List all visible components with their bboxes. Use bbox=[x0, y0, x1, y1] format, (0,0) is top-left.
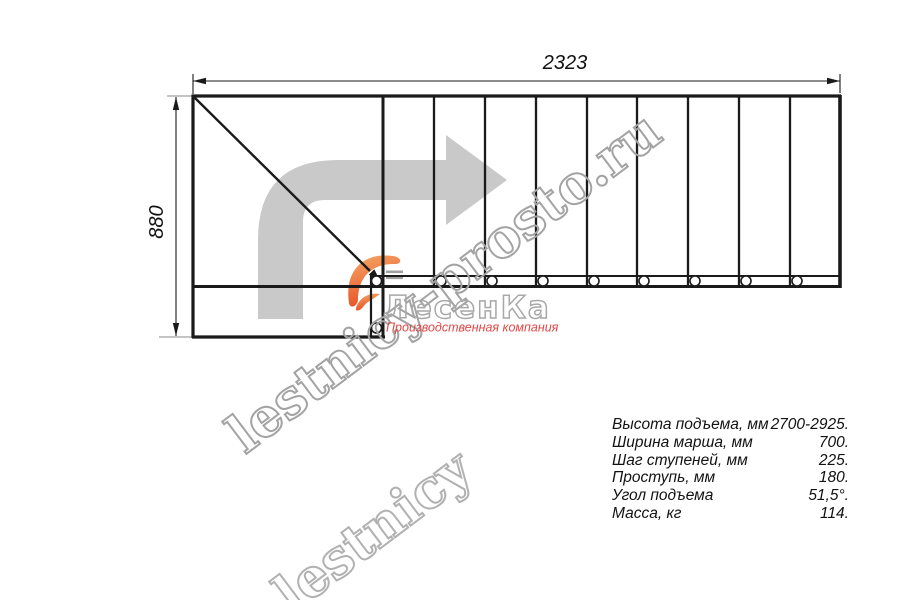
spec-value: 700. bbox=[819, 434, 849, 452]
spec-value: 180. bbox=[819, 469, 849, 487]
spec-row: Высота подъема, мм 2700-2925. bbox=[612, 416, 849, 434]
spec-label: Угол подъема bbox=[612, 487, 713, 505]
spec-row: Угол подъема 51,5°. bbox=[612, 487, 849, 505]
spec-row: Ширина марша, мм 700. bbox=[612, 434, 849, 452]
watermark-echo-text: lestnicy bbox=[263, 436, 486, 600]
spec-value: 225. bbox=[819, 452, 849, 470]
spec-label: Высота подъема, мм bbox=[612, 416, 769, 434]
width-dimension-label: 2323 bbox=[490, 52, 640, 75]
logo-tagline: Производственная компания bbox=[386, 321, 559, 335]
spec-value: 114. bbox=[820, 505, 849, 523]
spec-row: Масса, кг 114. bbox=[612, 505, 849, 523]
spec-row: Проступь, мм 180. bbox=[612, 469, 849, 487]
logo-ladder-step bbox=[386, 271, 403, 274]
spec-label: Ширина марша, мм bbox=[612, 434, 753, 452]
stair-drawing-page: lestnicy-prosto.ru lestnicy ЛесенКа Прои… bbox=[0, 0, 900, 600]
spec-label: Шаг ступеней, мм bbox=[612, 452, 748, 470]
spec-row: Шаг ступеней, мм 225. bbox=[612, 452, 849, 470]
height-dimension-label: 880 bbox=[137, 182, 177, 262]
spec-label: Проступь, мм bbox=[612, 469, 715, 487]
spec-table: Высота подъема, мм 2700-2925. Ширина мар… bbox=[612, 416, 849, 523]
spec-value: 51,5°. bbox=[808, 487, 849, 505]
spec-label: Масса, кг bbox=[612, 505, 681, 523]
spec-value: 2700-2925. bbox=[771, 416, 849, 434]
